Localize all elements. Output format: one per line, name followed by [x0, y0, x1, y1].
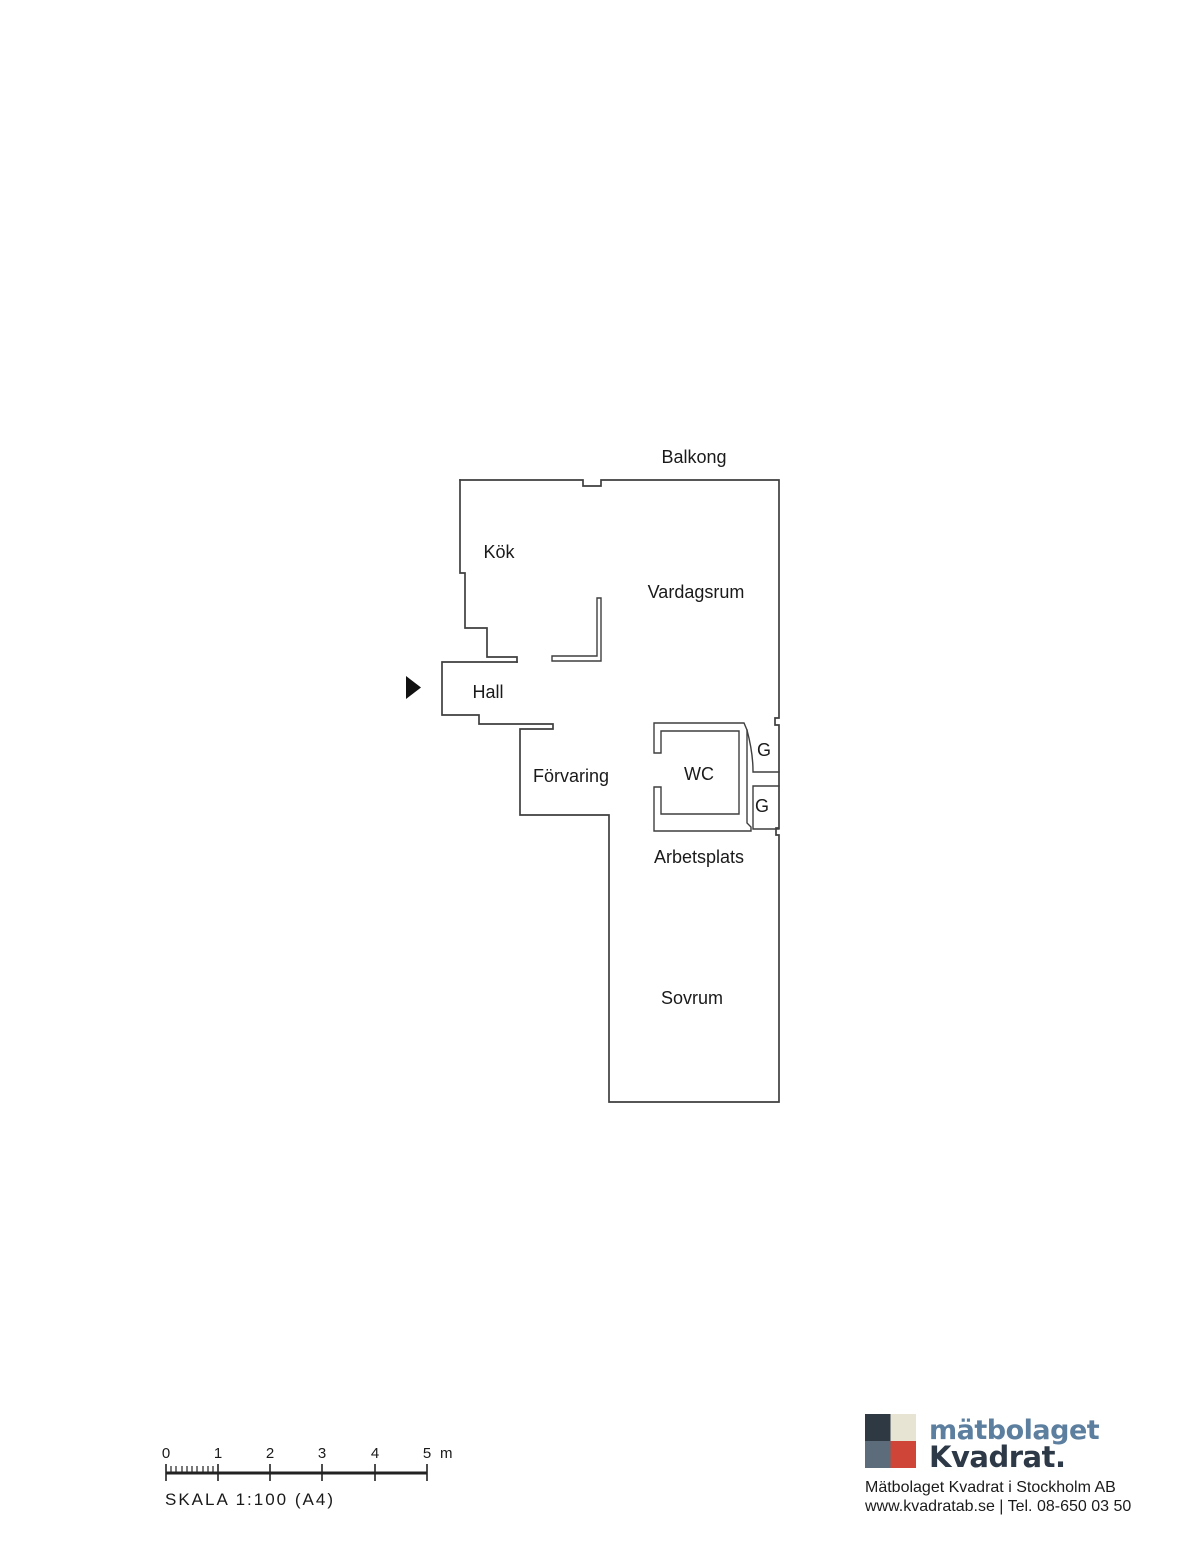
company-logo: mätbolaget Kvadrat. Mätbolaget Kvadrat i…: [864, 1414, 1131, 1515]
outer-wall-path: [442, 480, 779, 1102]
scale-tick-3: 3: [318, 1445, 326, 1462]
floor-plan-page: Balkong Kök Vardagsrum Hall Förvaring WC…: [0, 0, 1200, 1553]
scale-unit: m: [440, 1445, 453, 1462]
scale-tick-2: 2: [266, 1445, 274, 1462]
logo-square-top-left: [865, 1414, 891, 1441]
footer-company-line: Mätbolaget Kvadrat i Stockholm AB: [865, 1479, 1116, 1496]
floor-plan-canvas: Balkong Kök Vardagsrum Hall Förvaring WC…: [0, 0, 1200, 1553]
room-label-wc: WC: [684, 764, 714, 784]
room-label-vardagsrum: Vardagsrum: [648, 582, 745, 602]
scale-caption: SKALA 1:100 (A4): [165, 1490, 335, 1509]
room-label-forvaring: Förvaring: [533, 766, 609, 786]
room-label-hall: Hall: [472, 682, 503, 702]
room-label-kok: Kök: [483, 542, 515, 562]
logo-square-top-right: [891, 1414, 917, 1441]
scale-tick-4: 4: [371, 1445, 379, 1462]
logo-square-bottom-left: [865, 1441, 891, 1468]
brand-name-line2: Kvadrat.: [929, 1440, 1065, 1474]
footer-contact-line: www.kvadratab.se | Tel. 08-650 03 50: [864, 1498, 1131, 1515]
scale-bar: 0 1 2 3 4 5 m SKALA 1:100 (A4): [162, 1445, 453, 1509]
entrance-arrow-icon: [406, 676, 421, 699]
room-label-sovrum: Sovrum: [661, 988, 723, 1008]
scale-tick-1: 1: [214, 1445, 222, 1462]
apartment-walls: [442, 480, 779, 1102]
kitchen-partition-wall: [552, 598, 601, 661]
room-label-balkong: Balkong: [661, 447, 726, 467]
scale-tick-0: 0: [162, 1445, 170, 1462]
scale-tick-5: 5: [423, 1445, 431, 1462]
kitchen-left-wall-path: [460, 480, 517, 662]
room-label-arbetsplats: Arbetsplats: [654, 847, 744, 867]
room-label-garderob-upper: G: [757, 740, 771, 760]
logo-square-bottom-right: [891, 1441, 917, 1468]
room-label-garderob-lower: G: [755, 796, 769, 816]
